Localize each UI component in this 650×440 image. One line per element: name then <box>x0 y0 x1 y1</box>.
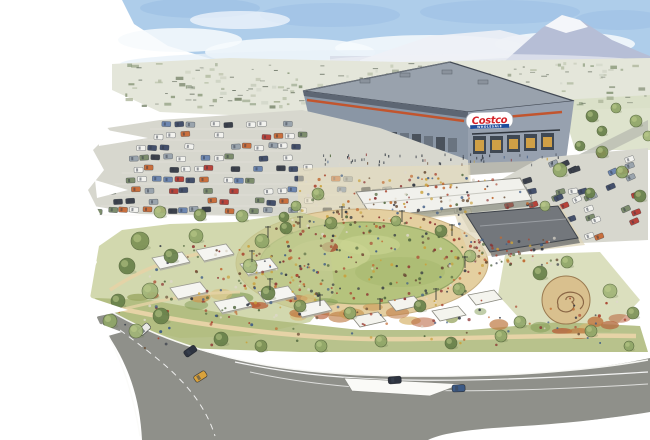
rooftop-unit <box>360 79 370 83</box>
lawn-dark-patch <box>355 257 445 287</box>
spiral-garden <box>542 276 590 324</box>
costco-sign: Costco WHOLESALE <box>466 111 514 130</box>
watercolor-rendering: Costco WHOLESALE <box>0 0 650 440</box>
scene-canvas: Costco WHOLESALE <box>0 0 650 440</box>
lawn-light-patch <box>340 235 400 255</box>
rooftop-unit <box>400 73 410 77</box>
rooftop-unit <box>478 80 488 84</box>
torn-edge-left <box>0 0 122 440</box>
cloud <box>190 11 290 29</box>
rooftop-unit <box>442 70 452 74</box>
